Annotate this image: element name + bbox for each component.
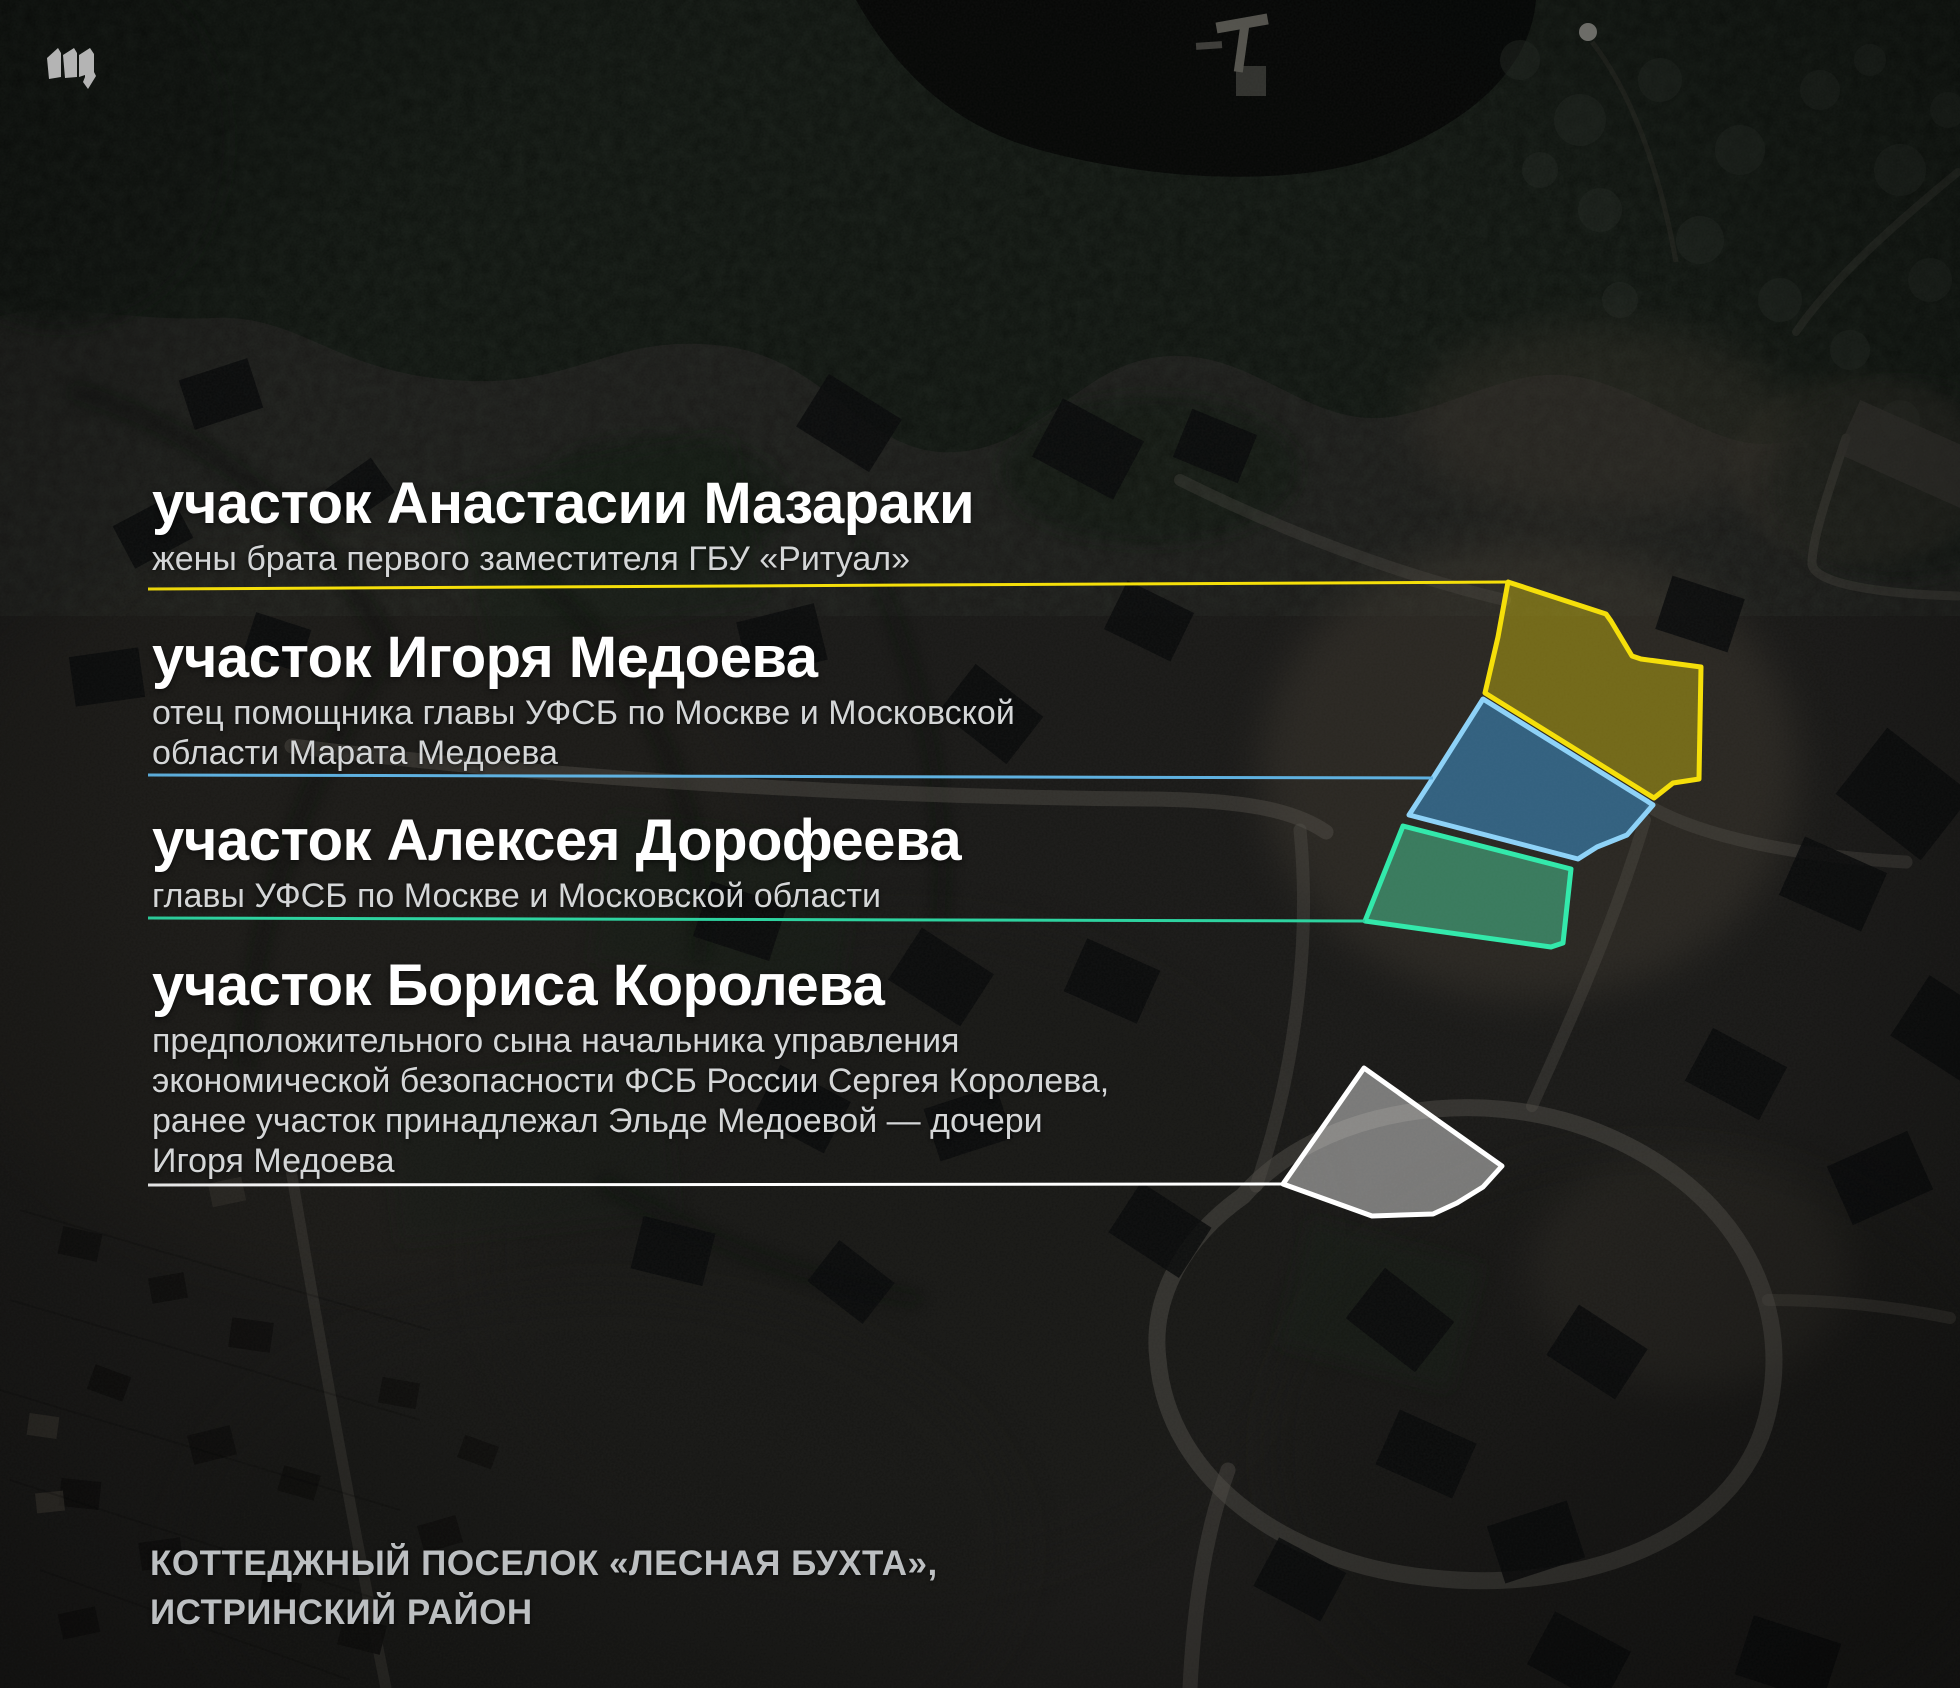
plot-owner-subtitle: области Марата Медоева	[152, 733, 1015, 773]
label-mazaraki: участок Анастасии Мазараки жены брата пе…	[152, 473, 974, 579]
plot-owner-subtitle: Игоря Медоева	[152, 1141, 1109, 1181]
label-medoev: участок Игоря Медоева отец помощника гла…	[152, 627, 1015, 773]
plot-owner-subtitle: главы УФСБ по Москве и Московской област…	[152, 876, 961, 916]
plot-owner-subtitle: экономической безопасности ФСБ России Се…	[152, 1061, 1109, 1101]
plot-owner-subtitle: предположительного сына начальника управ…	[152, 1021, 1109, 1061]
plot-owner-title: участок Бориса Королева	[152, 955, 1109, 1017]
plot-owner-subtitle: ранее участок принадлежал Эльде Медоевой…	[152, 1101, 1109, 1141]
plot-owner-title: участок Игоря Медоева	[152, 627, 1015, 689]
infographic-root: участок Анастасии Мазараки жены брата пе…	[0, 0, 1960, 1688]
plot-owner-subtitle: жены брата первого заместителя ГБУ «Риту…	[152, 539, 974, 579]
label-korolev: участок Бориса Королева предположительно…	[152, 955, 1109, 1181]
plot-owner-subtitle: отец помощника главы УФСБ по Москве и Мо…	[152, 693, 1015, 733]
leader-korolev	[148, 1184, 1283, 1185]
plot-owner-title: участок Алексея Дорофеева	[152, 810, 961, 872]
location-caption-line: ИСТРИНСКИЙ РАЙОН	[150, 1588, 938, 1637]
plot-owner-title: участок Анастасии Мазараки	[152, 473, 974, 535]
location-caption-line: КОТТЕДЖНЫЙ ПОСЕЛОК «ЛЕСНАЯ БУХТА»,	[150, 1539, 938, 1588]
location-caption: КОТТЕДЖНЫЙ ПОСЕЛОК «ЛЕСНАЯ БУХТА», ИСТРИ…	[150, 1539, 938, 1637]
label-dorofeev: участок Алексея Дорофеева главы УФСБ по …	[152, 810, 961, 916]
meduza-m-logo-icon	[44, 44, 98, 90]
